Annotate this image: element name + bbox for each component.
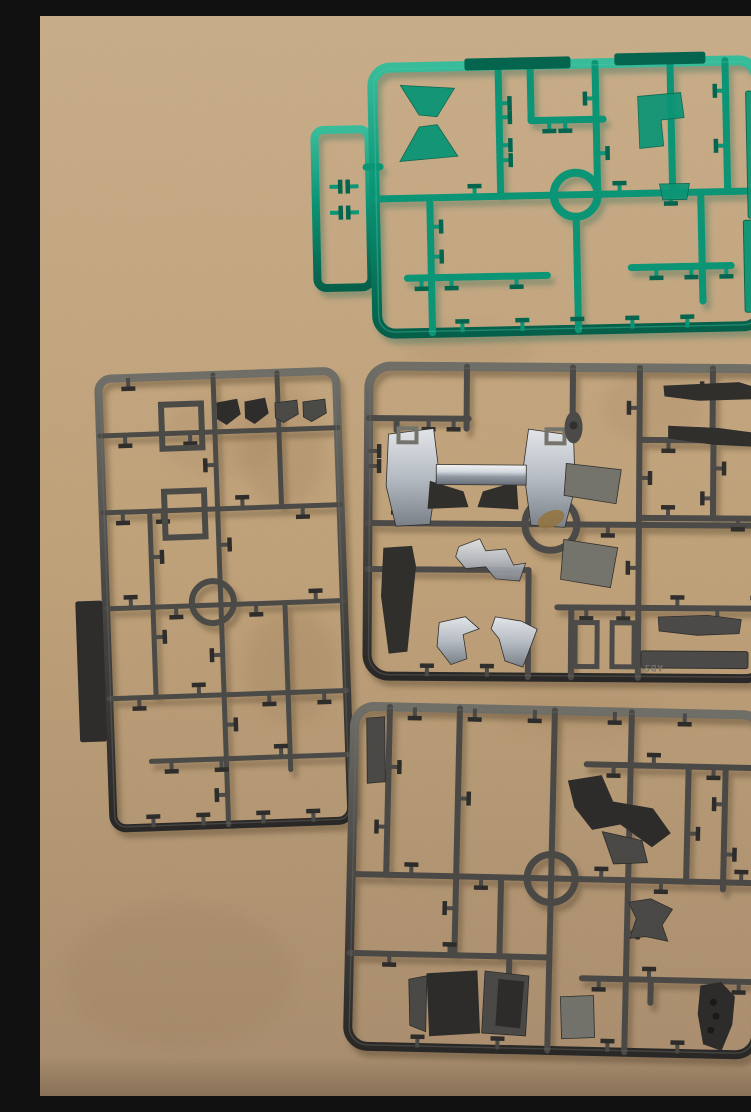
photo-model-kit-sprues: ABS <box>40 16 751 1096</box>
paper-grain <box>40 16 751 1096</box>
photo-bottom-edge <box>40 1056 751 1096</box>
scene-canvas: ABS <box>40 16 751 1096</box>
